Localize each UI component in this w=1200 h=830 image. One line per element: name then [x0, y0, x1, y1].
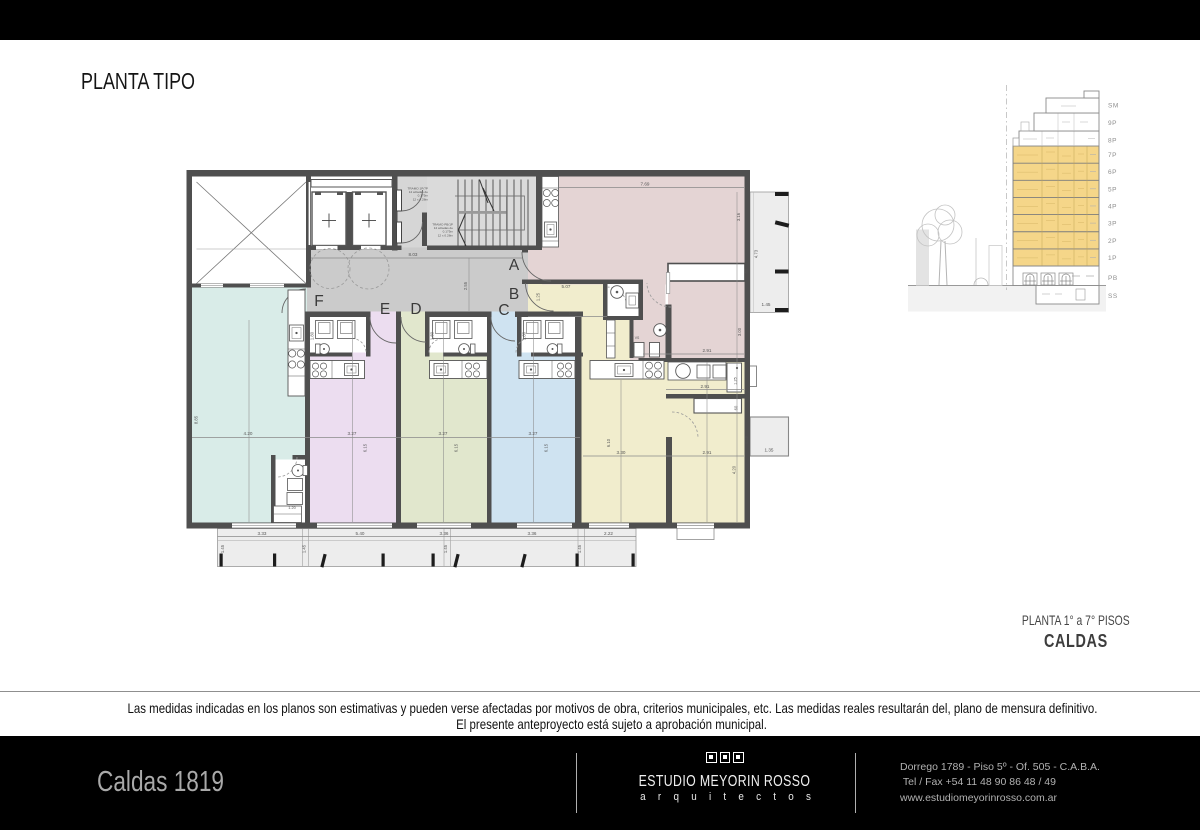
svg-text:B: B	[509, 286, 519, 303]
svg-text:2.91: 2.91	[703, 348, 712, 353]
svg-text:60: 60	[734, 405, 739, 410]
svg-text:3.33: 3.33	[258, 531, 267, 536]
svg-text:12 x 0.28m: 12 x 0.28m	[438, 233, 454, 237]
svg-text:C: C	[498, 302, 509, 319]
svg-text:9P: 9P	[1108, 120, 1117, 127]
svg-text:3.27: 3.27	[439, 431, 448, 436]
svg-text:1.80: 1.80	[310, 331, 315, 340]
svg-text:6.15: 6.15	[363, 443, 368, 452]
svg-text:3.27: 3.27	[348, 431, 357, 436]
svg-text:5.40: 5.40	[356, 531, 365, 536]
svg-text:1.45: 1.45	[762, 302, 771, 307]
svg-text:4.73: 4.73	[754, 249, 759, 258]
svg-text:5P: 5P	[1108, 187, 1117, 194]
svg-text:6.10: 6.10	[606, 438, 611, 447]
svg-text:1P: 1P	[1108, 255, 1117, 262]
svg-text:3.00: 3.00	[737, 327, 742, 336]
svg-text:8P: 8P	[1108, 138, 1117, 145]
svg-text:1.00: 1.00	[569, 311, 578, 316]
svg-text:4P: 4P	[1108, 204, 1117, 211]
svg-text:1.80: 1.80	[430, 331, 435, 340]
svg-text:6.15: 6.15	[454, 443, 459, 452]
svg-text:3.36: 3.36	[528, 531, 537, 536]
svg-text:1.25: 1.25	[536, 292, 541, 301]
svg-text:2.55: 2.55	[463, 281, 468, 290]
svg-text:1.20: 1.20	[288, 506, 295, 510]
svg-text:F: F	[314, 293, 323, 310]
svg-text:A: A	[509, 257, 520, 274]
svg-text:3P: 3P	[1108, 221, 1117, 228]
svg-text:80: 80	[744, 268, 749, 273]
svg-text:4.20: 4.20	[732, 465, 737, 474]
svg-text:PB: PB	[1108, 275, 1118, 282]
svg-text:3.30: 3.30	[617, 450, 626, 455]
svg-text:3.16: 3.16	[736, 212, 741, 221]
svg-text:6.15: 6.15	[544, 443, 549, 452]
svg-text:E: E	[380, 301, 390, 318]
svg-text:1.35: 1.35	[765, 448, 774, 453]
svg-text:SS: SS	[1108, 293, 1118, 300]
svg-text:1.48: 1.48	[744, 435, 749, 444]
svg-text:1.80: 1.80	[522, 331, 527, 340]
svg-text:6P: 6P	[1108, 169, 1117, 176]
svg-text:7.69: 7.69	[641, 182, 650, 187]
svg-text:1.45: 1.45	[577, 544, 582, 553]
svg-text:2.91: 2.91	[703, 450, 712, 455]
svg-text:8.03: 8.03	[409, 252, 418, 257]
svg-text:1.45: 1.45	[302, 544, 307, 553]
svg-text:5.07: 5.07	[562, 284, 571, 289]
svg-text:2.91: 2.91	[701, 384, 710, 389]
svg-text:1.45: 1.45	[220, 544, 225, 553]
svg-text:1.45: 1.45	[443, 544, 448, 553]
svg-text:VS: VS	[635, 336, 640, 340]
svg-text:7P: 7P	[1108, 152, 1117, 159]
svg-text:8.85: 8.85	[194, 415, 199, 424]
svg-text:3.27: 3.27	[529, 431, 538, 436]
svg-text:SM: SM	[1108, 103, 1119, 110]
svg-text:4.20: 4.20	[244, 431, 253, 436]
svg-text:2P: 2P	[1108, 238, 1117, 245]
svg-text:2.22: 2.22	[604, 531, 613, 536]
svg-text:D: D	[410, 301, 421, 318]
svg-text:3.36: 3.36	[440, 531, 449, 536]
